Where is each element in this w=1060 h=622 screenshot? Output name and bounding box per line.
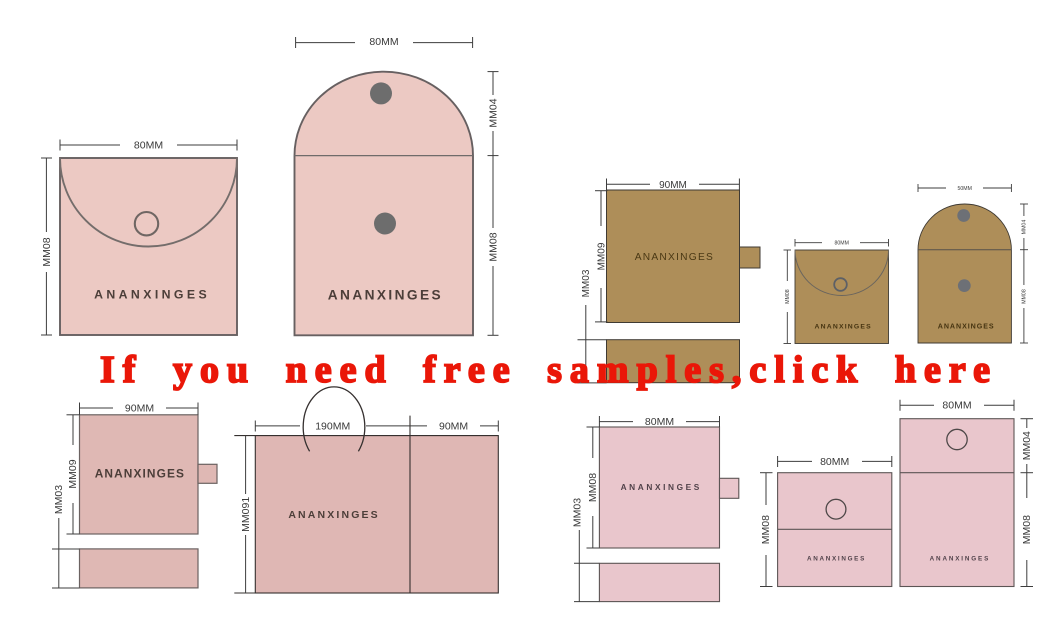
- svg-text:If you need free samples,click: If you need free samples,click here: [100, 349, 998, 391]
- svg-text:MM04: MM04: [1021, 431, 1033, 460]
- svg-text:ANANXINGES: ANANXINGES: [621, 482, 702, 492]
- svg-text:80MM: 80MM: [645, 416, 674, 428]
- svg-text:MM08: MM08: [488, 232, 500, 261]
- svg-text:ANANXINGES: ANANXINGES: [288, 509, 380, 521]
- svg-text:MM08: MM08: [785, 289, 791, 304]
- svg-text:90MM: 90MM: [125, 403, 154, 415]
- svg-text:MM04: MM04: [488, 98, 500, 127]
- svg-text:MM08: MM08: [760, 515, 772, 544]
- svg-text:MM08: MM08: [587, 473, 599, 502]
- svg-text:80MM: 80MM: [820, 456, 849, 468]
- svg-text:MM09: MM09: [67, 459, 79, 488]
- svg-text:ANANXINGES: ANANXINGES: [94, 287, 210, 301]
- svg-text:ANANXINGES: ANANXINGES: [938, 323, 995, 331]
- svg-text:ANANXINGES: ANANXINGES: [635, 252, 714, 263]
- svg-text:MM03: MM03: [572, 498, 584, 527]
- svg-text:80MM: 80MM: [942, 400, 971, 412]
- svg-text:MM091: MM091: [240, 497, 252, 532]
- svg-text:ANANXINGES: ANANXINGES: [930, 555, 990, 562]
- svg-text:ANANXINGES: ANANXINGES: [95, 467, 185, 481]
- svg-text:MM08: MM08: [1022, 289, 1028, 304]
- svg-text:80MM: 80MM: [134, 140, 163, 152]
- svg-text:90MM: 90MM: [439, 420, 468, 432]
- svg-text:ANANXINGES: ANANXINGES: [807, 555, 866, 562]
- svg-text:MM04: MM04: [1022, 220, 1028, 235]
- svg-text:MM08: MM08: [41, 237, 53, 266]
- svg-text:MM09: MM09: [597, 242, 608, 270]
- svg-text:ANANXINGES: ANANXINGES: [815, 324, 872, 331]
- svg-text:80MM: 80MM: [369, 36, 398, 48]
- svg-text:190MM: 190MM: [315, 420, 350, 432]
- svg-text:MM08: MM08: [1021, 515, 1033, 544]
- svg-text:ANANXINGES: ANANXINGES: [328, 287, 443, 302]
- svg-text:50MM: 50MM: [957, 186, 971, 192]
- svg-text:MM03: MM03: [581, 269, 592, 297]
- svg-text:90MM: 90MM: [659, 180, 687, 191]
- svg-text:MM03: MM03: [53, 485, 65, 514]
- svg-text:80MM: 80MM: [834, 241, 848, 247]
